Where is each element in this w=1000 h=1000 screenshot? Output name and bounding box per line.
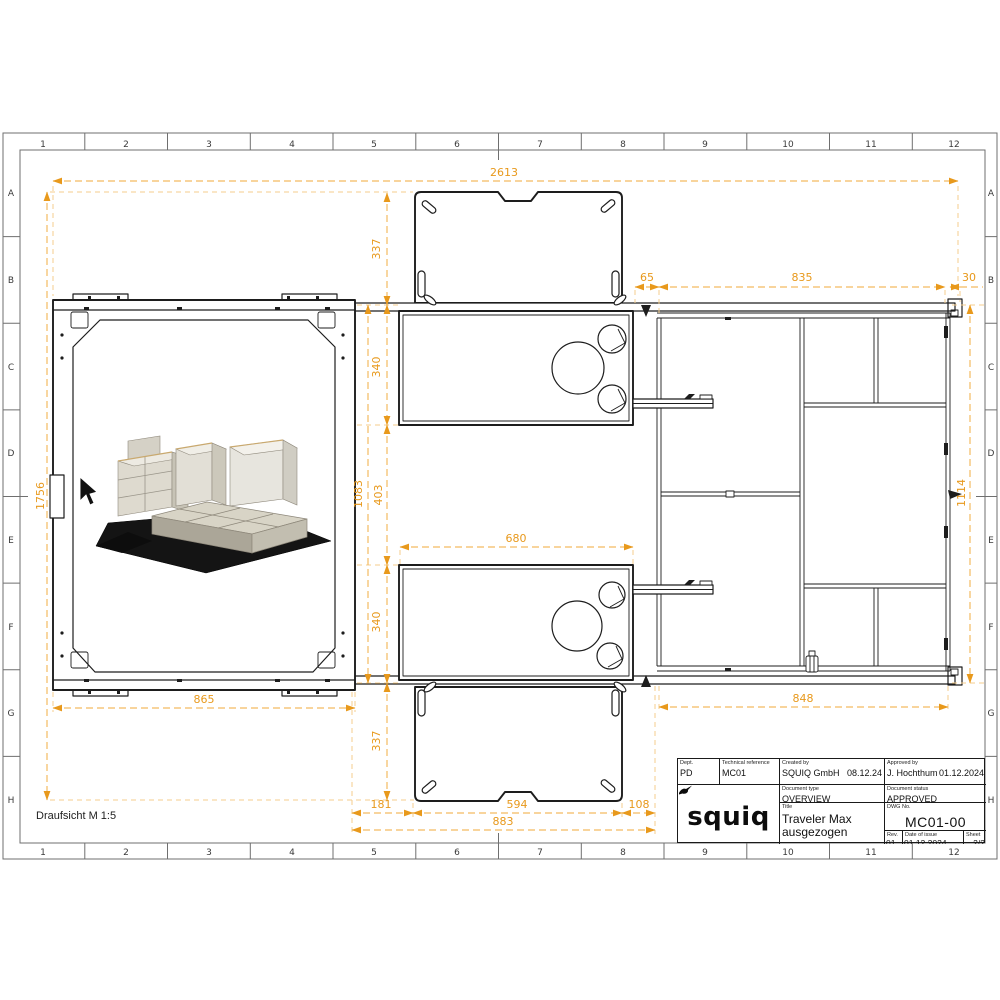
view-label: Draufsicht M 1:5	[36, 810, 116, 822]
titleblock-title-cell: Title Traveler Max ausgezogen	[779, 802, 884, 844]
grid-col-label: 6	[454, 848, 460, 858]
grid-col-label: 1	[40, 848, 46, 858]
grid-column-labels-top: 1 2 3 4 5 6 7 8 9 10 11 12	[40, 140, 960, 150]
title-label: Title	[780, 803, 884, 811]
frame-divider-vertical-2	[874, 318, 878, 666]
dwg-label: DWG No.	[885, 803, 986, 811]
created-by-value: SQUIQ GmbH	[782, 768, 840, 778]
dim-offset-left: 65	[640, 271, 654, 284]
grid-col-label: 7	[537, 848, 543, 858]
dim-seg-108: 108	[629, 798, 650, 811]
bird-icon	[678, 785, 693, 796]
doc-status-value: APPROVED	[885, 793, 986, 802]
created-date: 08.12.24	[847, 768, 882, 778]
dim-right-height: 1114	[955, 479, 968, 507]
grid-col-label: 1	[40, 140, 46, 150]
dwg-number: MC01-00	[885, 814, 986, 830]
titleblock-docstatus-cell: Document status APPROVED	[884, 784, 986, 802]
dim-total-height: 1756	[34, 482, 47, 510]
grid-col-label: 12	[948, 848, 959, 858]
dim-flap-top: 337	[370, 239, 383, 260]
grid-col-label: 4	[289, 140, 295, 150]
sheet-value: 2/2	[964, 839, 986, 844]
grid-col-label: 5	[371, 140, 377, 150]
dim-panel-width: 865	[194, 693, 215, 706]
grid-row-label: G	[988, 709, 995, 719]
titleblock-logo-cell: squiq	[678, 784, 779, 844]
grid-col-label: 10	[782, 140, 794, 150]
grid-row-label: E	[8, 536, 14, 546]
titleblock-issuedate-cell: Date of issue 01.12.2024	[902, 830, 963, 844]
grid-row-labels-right: A B C D E F G H	[988, 189, 995, 806]
titleblock-sheet-cell: Sheet 2/2	[963, 830, 986, 844]
titleblock-approvedby-cell: Approved by J. Hochthum 01.12.2024	[884, 759, 986, 784]
doc-type-label: Document type	[780, 785, 884, 793]
tech-ref-value: MC01	[720, 767, 779, 778]
rev-value: 01	[885, 839, 902, 844]
bottom-drawer	[399, 565, 633, 680]
grid-row-label: C	[8, 363, 14, 373]
dim-drawer-width: 680	[506, 532, 527, 545]
grid-col-label: 3	[206, 848, 212, 858]
dim-flap-bottom: 337	[370, 731, 383, 752]
dim-total-width: 2613	[490, 166, 518, 179]
dim-offset-right: 30	[962, 271, 976, 284]
approved-by-label: Approved by	[885, 759, 986, 767]
dim-frame-span: 835	[792, 271, 813, 284]
drawing-canvas: 1 2 3 4 5 6 7 8 9 10 11 12 1 2 3 4 5 6 7…	[0, 0, 1000, 1000]
drawing-sheet: 1 2 3 4 5 6 7 8 9 10 11 12 1 2 3 4 5 6 7…	[0, 0, 1000, 1000]
approved-date: 01.12.2024	[939, 768, 984, 778]
titleblock-dwg-cell: DWG No. MC01-00	[884, 802, 986, 830]
dim-seg-594: 594	[507, 798, 528, 811]
dept-label: Dept.	[678, 759, 719, 767]
grid-col-label: 11	[865, 140, 876, 150]
grid-column-labels-bottom: 1 2 3 4 5 6 7 8 9 10 11 12	[40, 848, 960, 858]
titleblock-dept-cell: Dept. PD	[678, 759, 719, 784]
panel-handle	[50, 475, 64, 518]
grid-row-label: H	[988, 796, 995, 806]
grid-row-label: D	[988, 449, 995, 459]
grid-row-label: B	[8, 276, 14, 286]
grid-row-label: H	[8, 796, 15, 806]
grid-col-label: 5	[371, 848, 377, 858]
dim-drawer-bottom: 340	[370, 612, 383, 633]
titleblock-createdby-cell: Created by SQUIQ GmbH 08.12.24	[779, 759, 884, 784]
doc-type-value: OVERVIEW	[780, 793, 884, 802]
tech-ref-label: Technical reference	[720, 759, 779, 767]
grid-col-label: 2	[123, 848, 129, 858]
doc-title-line2: ausgezogen	[782, 826, 882, 839]
titleblock-rev-cell: Rev. 01	[884, 830, 902, 844]
grid-col-label: 11	[865, 848, 876, 858]
grid-col-label: 10	[782, 848, 794, 858]
issue-date-value: 01.12.2024	[903, 839, 963, 844]
grid-col-label: 8	[620, 848, 626, 858]
grid-col-label: 6	[454, 140, 460, 150]
dim-mid-gap: 403	[372, 485, 385, 506]
grid-col-label: 9	[702, 848, 708, 858]
dim-frame-width: 848	[793, 692, 814, 705]
frame-divider-vertical-1	[800, 318, 804, 666]
grid-row-label: A	[988, 189, 995, 199]
grid-col-label: 9	[702, 140, 708, 150]
grid-col-label: 7	[537, 140, 543, 150]
grid-col-label: 4	[289, 848, 295, 858]
dept-value: PD	[678, 767, 719, 778]
title-block: Dept. PD Technical reference MC01 Create…	[677, 758, 985, 843]
top-drawer	[399, 311, 633, 425]
dim-body-height: 1083	[352, 480, 365, 508]
grid-row-label: F	[8, 623, 13, 633]
approved-by-value: J. Hochthum	[887, 768, 938, 778]
dim-flap-total: 883	[493, 815, 514, 828]
titleblock-doctype-cell: Document type OVERVIEW	[779, 784, 884, 802]
grid-row-label: E	[988, 536, 994, 546]
doc-status-label: Document status	[885, 785, 986, 793]
grid-row-label: C	[988, 363, 994, 373]
drawer-slides	[633, 394, 713, 594]
created-by-label: Created by	[780, 759, 884, 767]
frame-latch	[806, 651, 818, 672]
brand-logo-text: squiq	[687, 802, 770, 832]
dim-drawer-top: 340	[370, 357, 383, 378]
frame-shelf-top	[804, 403, 946, 407]
grid-row-labels-left: A B C D E F G H	[8, 189, 15, 806]
right-frame	[657, 313, 950, 672]
top-flap	[415, 192, 622, 303]
grid-row-label: A	[8, 189, 15, 199]
grid-col-label: 8	[620, 140, 626, 150]
grid-row-label: B	[988, 276, 994, 286]
grid-col-label: 2	[123, 140, 129, 150]
grid-col-label: 12	[948, 140, 959, 150]
dim-seg-181: 181	[371, 798, 392, 811]
titleblock-techref-cell: Technical reference MC01	[719, 759, 779, 784]
frame-shelf-bottom	[804, 584, 946, 588]
grid-col-label: 3	[206, 140, 212, 150]
bottom-flap	[415, 687, 622, 801]
grid-row-label: F	[988, 623, 993, 633]
grid-row-label: D	[8, 449, 15, 459]
grid-row-label: G	[8, 709, 15, 719]
